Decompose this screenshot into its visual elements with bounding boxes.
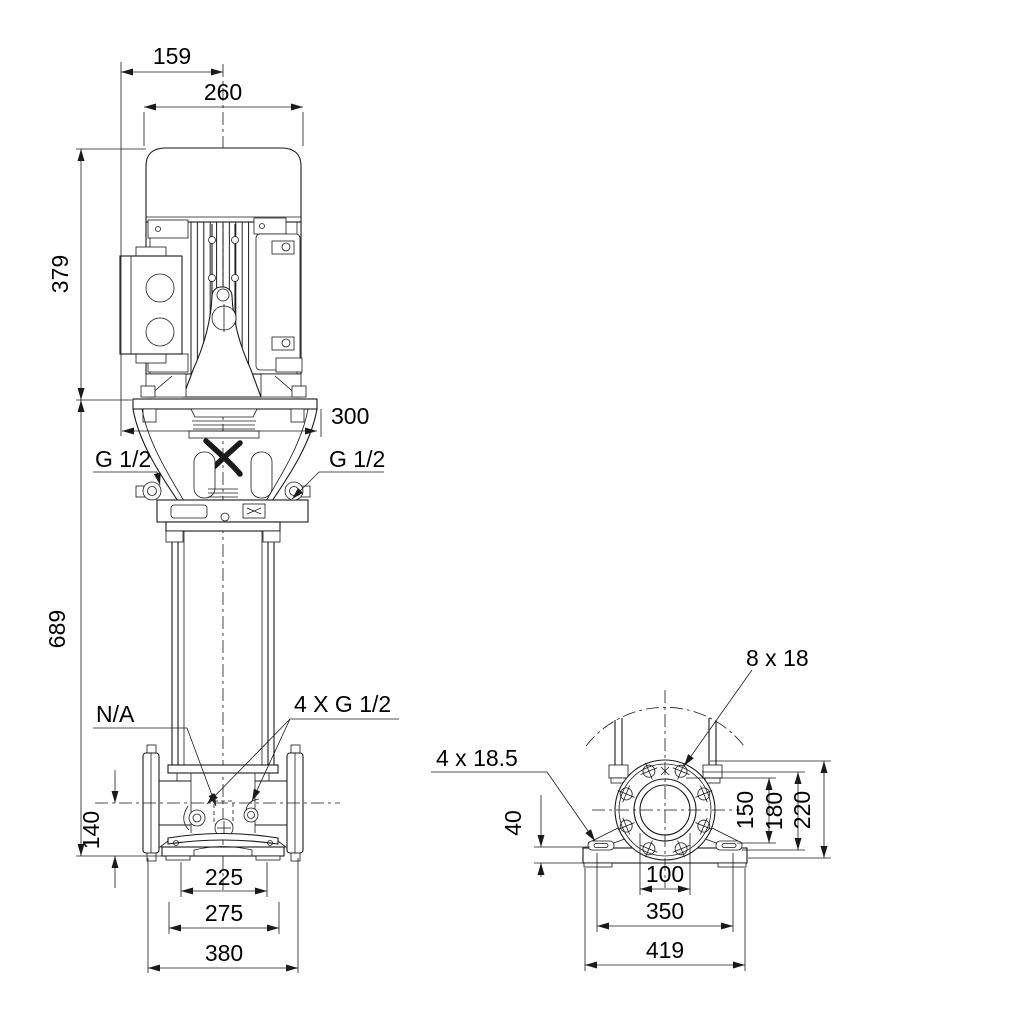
dim-text-689: 689 <box>44 610 70 648</box>
flange-holes-label: 8 x 18 <box>746 645 809 671</box>
dim-text-140: 140 <box>78 811 104 849</box>
side-view <box>583 690 747 888</box>
dim-text-180: 180 <box>761 792 787 830</box>
dim-275: 275 <box>169 900 279 934</box>
dim-140: 140 <box>78 770 115 888</box>
coupling-cover <box>189 409 259 438</box>
cable-entry-hole <box>146 318 174 346</box>
dim-text-220: 220 <box>789 791 815 829</box>
dim-40: 40 <box>500 795 590 877</box>
nameplate <box>171 505 207 518</box>
terminal-box <box>120 247 182 363</box>
dim-text-150: 150 <box>732 791 758 829</box>
na-label: N/A <box>96 701 135 727</box>
motor-stool-flange <box>133 399 317 409</box>
foot-slot <box>588 841 614 850</box>
plugs-4x-label: 4 X G 1/2 <box>294 691 391 717</box>
dim-text-350: 350 <box>646 898 684 924</box>
dim-text-275: 275 <box>205 900 243 926</box>
plug-left-label: G 1/2 <box>95 446 151 472</box>
pump-dimensional-drawing: 159 260 379 689 300 G 1/2 <box>0 0 1024 1024</box>
dim-text-159: 159 <box>153 43 191 69</box>
dim-225: 225 <box>181 862 267 897</box>
foot-slot <box>716 841 742 850</box>
nameplate-band <box>157 500 308 531</box>
dim-text-225: 225 <box>205 864 243 890</box>
label-plug-left: G 1/2 <box>93 446 160 485</box>
dim-text-40: 40 <box>500 810 526 836</box>
label-flange-holes: 8 x 18 <box>684 645 809 766</box>
cable-entry-hole <box>146 274 174 302</box>
front-view <box>95 64 340 890</box>
dim-text-380: 380 <box>205 940 243 966</box>
dim-text-379: 379 <box>47 255 73 293</box>
plug-right-label: G 1/2 <box>329 446 385 472</box>
dim-260: 260 <box>144 79 303 146</box>
dim-text-100: 100 <box>646 861 684 887</box>
motor-fan-cover <box>146 148 301 222</box>
dim-text-300: 300 <box>331 403 369 429</box>
dim-text-419: 419 <box>646 937 684 963</box>
foot-holes-label: 4 x 18.5 <box>436 745 518 771</box>
dim-text-260: 260 <box>204 79 242 105</box>
technical-drawing: 159 260 379 689 300 G 1/2 <box>0 0 1024 1024</box>
